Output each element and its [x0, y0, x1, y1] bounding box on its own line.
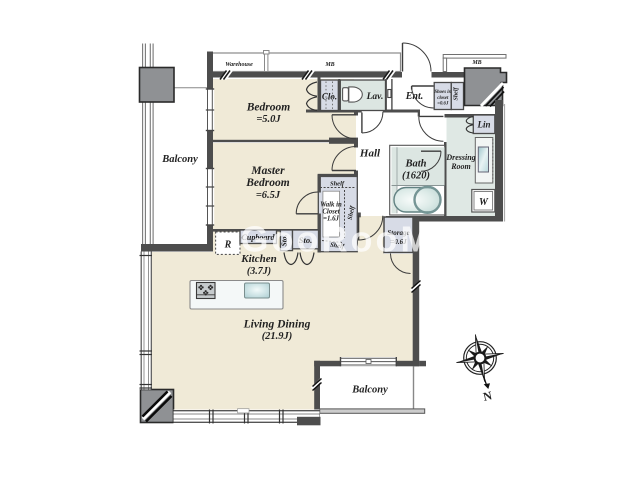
svg-text:R: R: [224, 240, 232, 251]
svg-text:Shoes in: Shoes in: [434, 90, 451, 95]
svg-text:Living Dining: Living Dining: [243, 319, 311, 331]
svg-text:Balcony: Balcony: [351, 385, 388, 396]
svg-text:Balcony: Balcony: [161, 154, 198, 165]
svg-text:=5.0J: =5.0J: [256, 114, 281, 125]
svg-text:Bath: Bath: [404, 159, 426, 170]
svg-text:Lin: Lin: [476, 120, 490, 130]
svg-text:Shelf: Shelf: [454, 87, 460, 101]
svg-text:MB: MB: [471, 60, 481, 66]
svg-text:=6.5J: =6.5J: [256, 190, 281, 201]
svg-text:(3.7J): (3.7J): [247, 266, 271, 277]
svg-text:Closet: Closet: [322, 209, 340, 216]
svg-text:Bedroom: Bedroom: [245, 177, 290, 189]
svg-text:Warehouse: Warehouse: [225, 62, 253, 68]
svg-text:MB: MB: [324, 62, 334, 68]
svg-text:(1620): (1620): [402, 171, 430, 182]
svg-text:Walk in: Walk in: [320, 202, 342, 209]
svg-text:Shelf: Shelf: [330, 181, 345, 188]
svg-text:Hall: Hall: [359, 148, 381, 160]
svg-text:=0.6J: =0.6J: [437, 102, 449, 107]
svg-text:W: W: [479, 197, 489, 208]
svg-text:GooRooM: GooRooM: [241, 219, 434, 260]
svg-text:Master: Master: [250, 165, 285, 177]
svg-text:Bedroom: Bedroom: [246, 102, 291, 114]
svg-text:closet: closet: [437, 96, 449, 101]
svg-text:Lav.: Lav.: [366, 92, 384, 102]
svg-text:Room: Room: [450, 162, 471, 171]
svg-text:Clo.: Clo.: [322, 92, 337, 102]
svg-text:(21.9J): (21.9J): [262, 331, 293, 342]
svg-text:Dressing: Dressing: [445, 153, 475, 162]
